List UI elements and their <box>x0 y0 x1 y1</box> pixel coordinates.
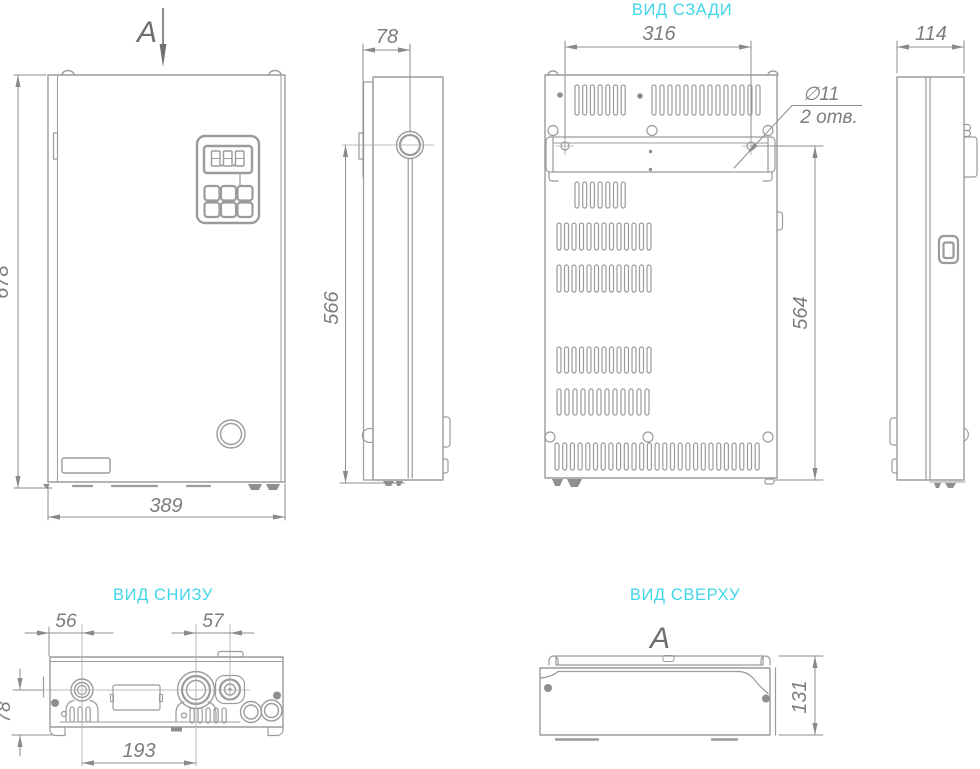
vent-group <box>70 707 90 722</box>
top-view: ВИД СВЕРХУ A 131 <box>540 586 823 740</box>
vent-slot <box>595 347 599 373</box>
vent-slot <box>597 389 601 415</box>
vent-slot <box>587 265 591 292</box>
vent-slot <box>625 223 629 250</box>
vent-slot <box>198 708 202 723</box>
vent-slot <box>563 443 567 470</box>
vent-group <box>575 182 625 208</box>
vent-slot <box>640 347 644 373</box>
knob-inner <box>221 424 242 445</box>
hole <box>548 126 558 136</box>
vent-slot <box>610 223 614 250</box>
dim-front-width: 389 <box>48 484 285 520</box>
front-feet <box>43 484 280 490</box>
vent-slot <box>708 85 712 115</box>
vent-slot <box>624 443 628 470</box>
boiler-dimension-drawing: A <box>0 0 980 769</box>
vent-slot <box>660 85 664 115</box>
hanger-hook <box>761 656 770 665</box>
cable-entry-inner <box>944 243 954 259</box>
vent-slot <box>587 223 591 250</box>
vent-slot <box>647 443 651 470</box>
vent-slot <box>565 347 569 373</box>
vent-slot <box>716 85 720 115</box>
door-handle <box>54 133 58 159</box>
top-body <box>540 668 770 735</box>
dim-text-78: 78 <box>0 701 15 723</box>
vent-slot <box>732 85 736 115</box>
vent-slot <box>602 223 606 250</box>
dim-text-131: 131 <box>789 680 811 713</box>
vent-group <box>555 443 759 470</box>
vent-slot <box>684 85 688 115</box>
vent-slot <box>621 85 625 115</box>
vent-slot <box>678 443 682 470</box>
dim-bottom-78: 78 <box>0 669 52 756</box>
vent-slot <box>570 443 574 470</box>
dim-text-193: 193 <box>122 740 155 762</box>
vent-slot <box>700 85 704 115</box>
vent-slot <box>606 182 610 208</box>
vent-slot <box>565 389 569 415</box>
hole-note: ∅11 2 отв. <box>734 84 862 168</box>
vent-slot <box>617 265 621 292</box>
vent-slot <box>614 182 618 208</box>
vent-slot <box>565 265 569 292</box>
dim-text-566: 566 <box>321 290 343 324</box>
foot <box>268 727 283 736</box>
vent-slot <box>676 85 680 115</box>
vent-slot <box>601 443 605 470</box>
vent-slot <box>617 223 621 250</box>
vent-slot <box>640 265 644 292</box>
vent-slot <box>572 223 576 250</box>
vent-slot <box>605 389 609 415</box>
vent-slot <box>732 443 736 470</box>
vent-slot <box>580 265 584 292</box>
vent-slot <box>557 347 561 373</box>
vent-slot <box>632 265 636 292</box>
vent-slot <box>686 443 690 470</box>
vent-slot <box>621 389 625 415</box>
vent-slot <box>590 182 594 208</box>
side-view-left: 78 566 <box>321 26 450 486</box>
vent-slot <box>598 182 602 208</box>
door-curve <box>540 672 768 694</box>
seven-segment-display <box>212 151 245 167</box>
screw-dot <box>557 92 563 98</box>
vent-slot <box>594 443 598 470</box>
control-panel <box>197 136 259 223</box>
vent-slot <box>555 443 559 470</box>
vent-slot <box>652 85 656 115</box>
vent-slot <box>632 347 636 373</box>
rear-view: ВИД СЗАДИ <box>545 1 862 487</box>
hole <box>643 432 653 442</box>
vent-slot <box>610 265 614 292</box>
side-door-panel <box>364 82 374 480</box>
vent-slot <box>663 443 667 470</box>
vent-slot <box>602 265 606 292</box>
vent-slot <box>578 443 582 470</box>
vent-group <box>557 347 651 373</box>
vent-slot <box>756 85 760 115</box>
vent-slot <box>709 443 713 470</box>
side-clip <box>777 212 783 230</box>
vent-group <box>652 85 760 115</box>
hanger-hook <box>549 656 558 665</box>
vent-slot <box>748 443 752 470</box>
dim-side-right-114: 114 <box>897 23 964 73</box>
vent-slot <box>606 85 610 115</box>
dim-text-57: 57 <box>202 611 225 632</box>
wall-bracket-hook <box>443 459 448 473</box>
vent-slot <box>645 389 649 415</box>
foot <box>934 483 941 488</box>
vent-slot <box>640 443 644 470</box>
keypad <box>205 186 253 217</box>
vent-slot <box>583 182 587 208</box>
bottom-view-title: ВИД СНИЗУ <box>113 586 213 604</box>
vent-slot <box>610 347 614 373</box>
hole <box>545 432 555 442</box>
vent-slot <box>629 389 633 415</box>
vent-hole <box>182 713 187 718</box>
foot-tab <box>171 727 182 732</box>
vent-slot <box>222 708 226 723</box>
dim-text-316: 316 <box>642 23 676 45</box>
wall-bracket-hook <box>443 417 450 447</box>
vent-slot <box>575 85 579 115</box>
vent-slot <box>755 443 759 470</box>
foot <box>945 483 956 488</box>
foot <box>567 479 582 487</box>
vent-slot <box>724 85 728 115</box>
top-section-label: A <box>648 622 670 655</box>
vent-slot <box>701 443 705 470</box>
dim-top-131: 131 <box>779 656 823 735</box>
vent-slot <box>717 443 721 470</box>
dim-text-56: 56 <box>55 611 77 632</box>
vent-slot <box>694 443 698 470</box>
vent-slot <box>557 265 561 292</box>
dim-rear-316: 316 <box>565 23 751 139</box>
vent-slot <box>586 443 590 470</box>
vent-slot <box>595 223 599 250</box>
control-panel-frame <box>197 136 259 223</box>
foot <box>765 479 774 484</box>
vent-slot <box>580 347 584 373</box>
dim-text-389: 389 <box>149 495 182 517</box>
section-arrow: A <box>135 8 166 67</box>
vent-slot <box>590 85 594 115</box>
vent-slot <box>637 389 641 415</box>
dim-bottom-56: 56 <box>25 611 113 656</box>
dim-front-height: 678 <box>0 75 52 488</box>
technical-drawing-page: A <box>0 0 980 769</box>
vent-slot <box>740 443 744 470</box>
vent-slot <box>190 708 194 723</box>
vent-slot <box>78 707 82 722</box>
vent-slot <box>595 265 599 292</box>
vent-group <box>190 708 226 723</box>
vent-slot <box>617 443 621 470</box>
vent-slot <box>206 708 210 723</box>
top-tab <box>218 652 243 658</box>
bracket-tab <box>964 131 971 137</box>
vent-slot <box>625 265 629 292</box>
vent-slot <box>640 223 644 250</box>
note-holes-count: 2 отв. <box>799 107 857 128</box>
vent-slot <box>647 223 651 250</box>
dim-side-78: 78 <box>363 26 410 177</box>
section-arrowhead-icon <box>160 44 167 67</box>
rear-view-title: ВИД СЗАДИ <box>632 1 732 19</box>
vent-slot <box>692 85 696 115</box>
vent-group <box>557 223 651 250</box>
vent-slot <box>602 347 606 373</box>
vent-slot <box>621 182 625 208</box>
nameplate <box>62 458 110 473</box>
vent-slot <box>581 389 585 415</box>
hole <box>763 432 773 442</box>
vent-slot <box>565 223 569 250</box>
vent-slot <box>575 182 579 208</box>
screw-dot <box>637 93 643 99</box>
vent-slot <box>647 347 651 373</box>
back-panel-strip <box>556 656 763 665</box>
mounting-bracket <box>546 137 775 181</box>
vent-slot <box>625 347 629 373</box>
vent-slot <box>557 223 561 250</box>
vent-slot <box>724 443 728 470</box>
vent-group <box>575 85 625 115</box>
vent-slot <box>632 223 636 250</box>
clip <box>892 459 897 473</box>
bottom-body <box>50 657 283 727</box>
vent-slot <box>609 443 613 470</box>
foot <box>50 727 65 736</box>
dim-bottom-57: 57 <box>172 611 254 633</box>
top-view-title: ВИД СВЕРХУ <box>630 586 740 604</box>
clip <box>890 418 897 445</box>
dim-text-678: 678 <box>0 265 13 298</box>
vent-slot <box>740 85 744 115</box>
note-diameter: ∅11 <box>803 84 839 105</box>
vent-group <box>557 265 651 292</box>
dim-text-564: 564 <box>790 296 812 329</box>
vent-slot <box>572 265 576 292</box>
dim-text-114: 114 <box>915 23 947 45</box>
section-label: A <box>135 16 157 49</box>
hole <box>647 126 657 136</box>
vent-slot <box>614 85 618 115</box>
vent-slot <box>572 347 576 373</box>
vent-slot <box>598 85 602 115</box>
vent-slot <box>557 389 561 415</box>
vent-slot <box>617 347 621 373</box>
cable-glands <box>241 700 283 723</box>
vent-slot <box>589 389 593 415</box>
screw-dot <box>273 692 281 700</box>
vent-slot <box>580 223 584 250</box>
dim-text-78: 78 <box>376 26 398 48</box>
center-cutout <box>111 685 163 710</box>
vent-slot <box>655 443 659 470</box>
vent-slot <box>647 265 651 292</box>
foot <box>552 479 563 486</box>
dim-side-566: 566 <box>321 145 434 483</box>
bracket-tab <box>964 125 971 131</box>
wall-bracket <box>964 137 977 177</box>
vent-group <box>557 389 649 415</box>
vent-slot <box>573 389 577 415</box>
vent-slot <box>671 443 675 470</box>
screw-dot <box>544 684 552 692</box>
dim-bottom-193: 193 <box>82 740 196 763</box>
side-view-right: 114 <box>890 23 977 488</box>
vent-slot <box>583 85 587 115</box>
vent-slot <box>70 707 74 722</box>
vent-slot <box>632 443 636 470</box>
screw-dot <box>51 699 59 707</box>
vent-slot <box>613 389 617 415</box>
screw-dot <box>762 695 770 703</box>
vent-slot <box>668 85 672 115</box>
vent-slot <box>587 347 591 373</box>
front-view: A <box>0 8 285 520</box>
dim-rear-564: 564 <box>755 146 823 480</box>
bottom-view: ВИД СНИЗУ <box>0 586 283 766</box>
vent-slot <box>86 707 90 722</box>
